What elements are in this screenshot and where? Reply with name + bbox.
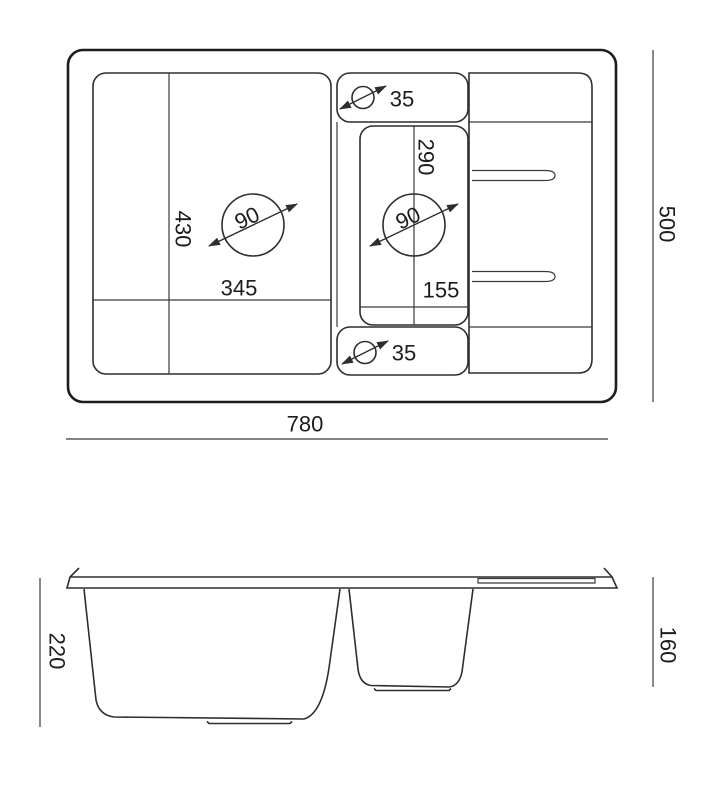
- tap-hole-top-label: 35: [390, 87, 414, 112]
- tap-hole-top-diameter-arrow: [340, 86, 386, 109]
- sink-drawing-svg: 780 500 430 345 90 290 155 90 35 35 220 …: [0, 0, 721, 800]
- sink-outline: [68, 50, 616, 402]
- dim-160-label: 160: [656, 627, 681, 664]
- side-view: 220 160: [40, 568, 681, 727]
- dim-780-label: 780: [287, 412, 324, 437]
- drain-groove-2: [472, 272, 555, 282]
- main-bowl-profile: [84, 589, 340, 719]
- technical-drawing-canvas: 780 500 430 345 90 290 155 90 35 35 220 …: [0, 0, 721, 800]
- main-bowl: [93, 73, 331, 374]
- main-drain-diameter-label: 90: [231, 201, 264, 234]
- tap-hole-bottom-label: 35: [392, 341, 416, 366]
- main-bowl-drain-recess: [207, 722, 292, 724]
- dim-155-label: 155: [423, 278, 460, 303]
- drain-groove-1: [472, 171, 555, 181]
- dim-500-label: 500: [655, 206, 680, 243]
- half-drain-diameter-label: 90: [392, 201, 425, 234]
- drainboard: [469, 73, 592, 373]
- top-view: 780 500 430 345 90 290 155 90 35 35: [66, 50, 680, 439]
- dim-290-label: 290: [414, 139, 439, 176]
- half-bowl-profile: [349, 589, 473, 687]
- dim-220-label: 220: [45, 633, 70, 670]
- dim-430-label: 430: [171, 211, 196, 248]
- half-bowl-drain-recess: [374, 689, 451, 691]
- tap-hole-bottom-diameter-arrow: [342, 341, 388, 364]
- dim-345-label: 345: [221, 276, 258, 301]
- drainboard-edge-profile: [478, 579, 595, 584]
